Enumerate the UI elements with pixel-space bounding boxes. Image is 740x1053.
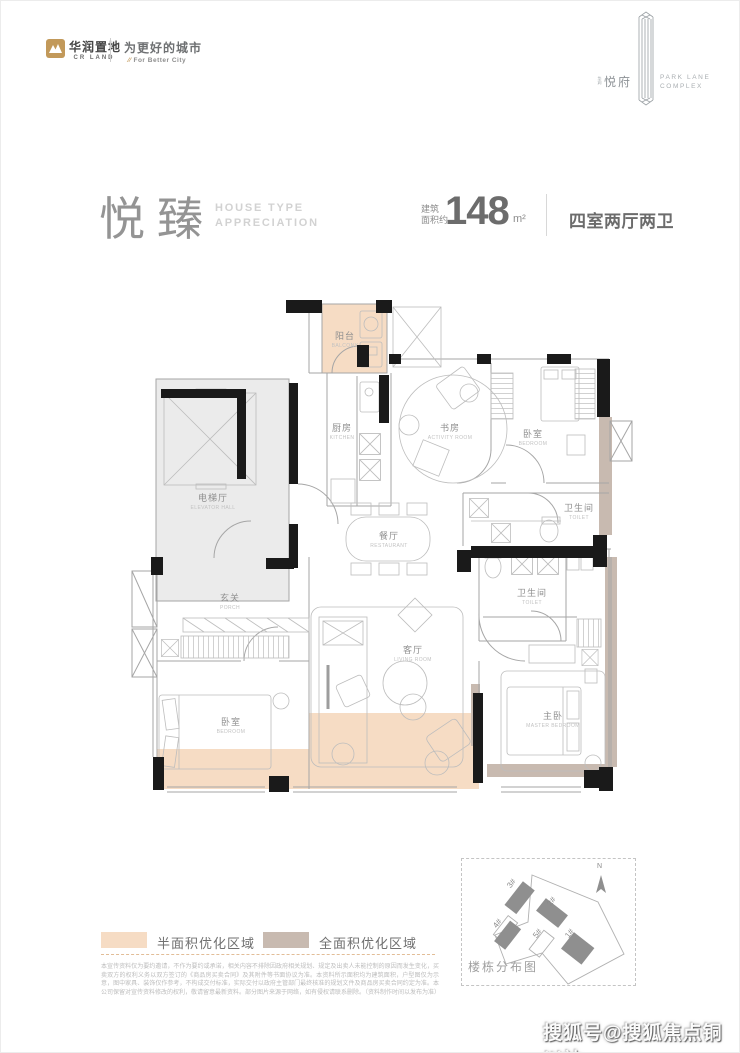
room-label-porch: 玄关PORCH xyxy=(220,591,240,611)
legend-label-full-optimized: 全面积优化区域 xyxy=(319,933,417,952)
room-label-bedroom-2: 卧室BEDROOM xyxy=(519,427,548,447)
legend-swatch-full-optimized xyxy=(263,932,309,948)
room-label-toilet-upper: 卫生间TOILET xyxy=(564,501,594,521)
room-label-kitchen: 厨房KITCHEN xyxy=(330,421,355,441)
poster-page: 华润置地 CR LAND 为更好的城市 ⁄⁄ For Better City 华… xyxy=(0,0,740,1053)
room-label-balcony: 阳台BALCONY xyxy=(332,329,359,349)
room-label-elevator-hall: 电梯厅ELEVATOR HALL xyxy=(191,491,236,511)
room-label-living: 客厅LIVING ROOM xyxy=(394,643,432,663)
watermark: 搜狐号@搜狐焦点铜川站 xyxy=(543,1018,739,1053)
room-label-dining: 餐厅RESTAURANT xyxy=(370,529,408,549)
legend-divider-line xyxy=(101,954,435,955)
room-label-bedroom-3: 卧室BEDROOM xyxy=(217,715,246,735)
legend-swatch-half-optimized xyxy=(101,932,147,948)
disclaimer-text: 本宣传资料仅为要约邀请，不作为要约或承诺，相关内容不排除因政府相关规划、规定及出… xyxy=(101,963,439,997)
room-label-study: 书房ACTIVITY ROOM xyxy=(428,421,473,441)
legend-label-half-optimized: 半面积优化区域 xyxy=(157,933,255,952)
tower-illustration xyxy=(639,12,653,105)
room-label-master-bedroom: 主卧MASTER BEDROOM xyxy=(526,709,580,729)
north-arrow-label: N xyxy=(597,863,602,870)
room-label-toilet-lower: 卫生间TOILET xyxy=(517,586,547,606)
sitemap-title: 楼栋分布图 xyxy=(468,958,538,975)
